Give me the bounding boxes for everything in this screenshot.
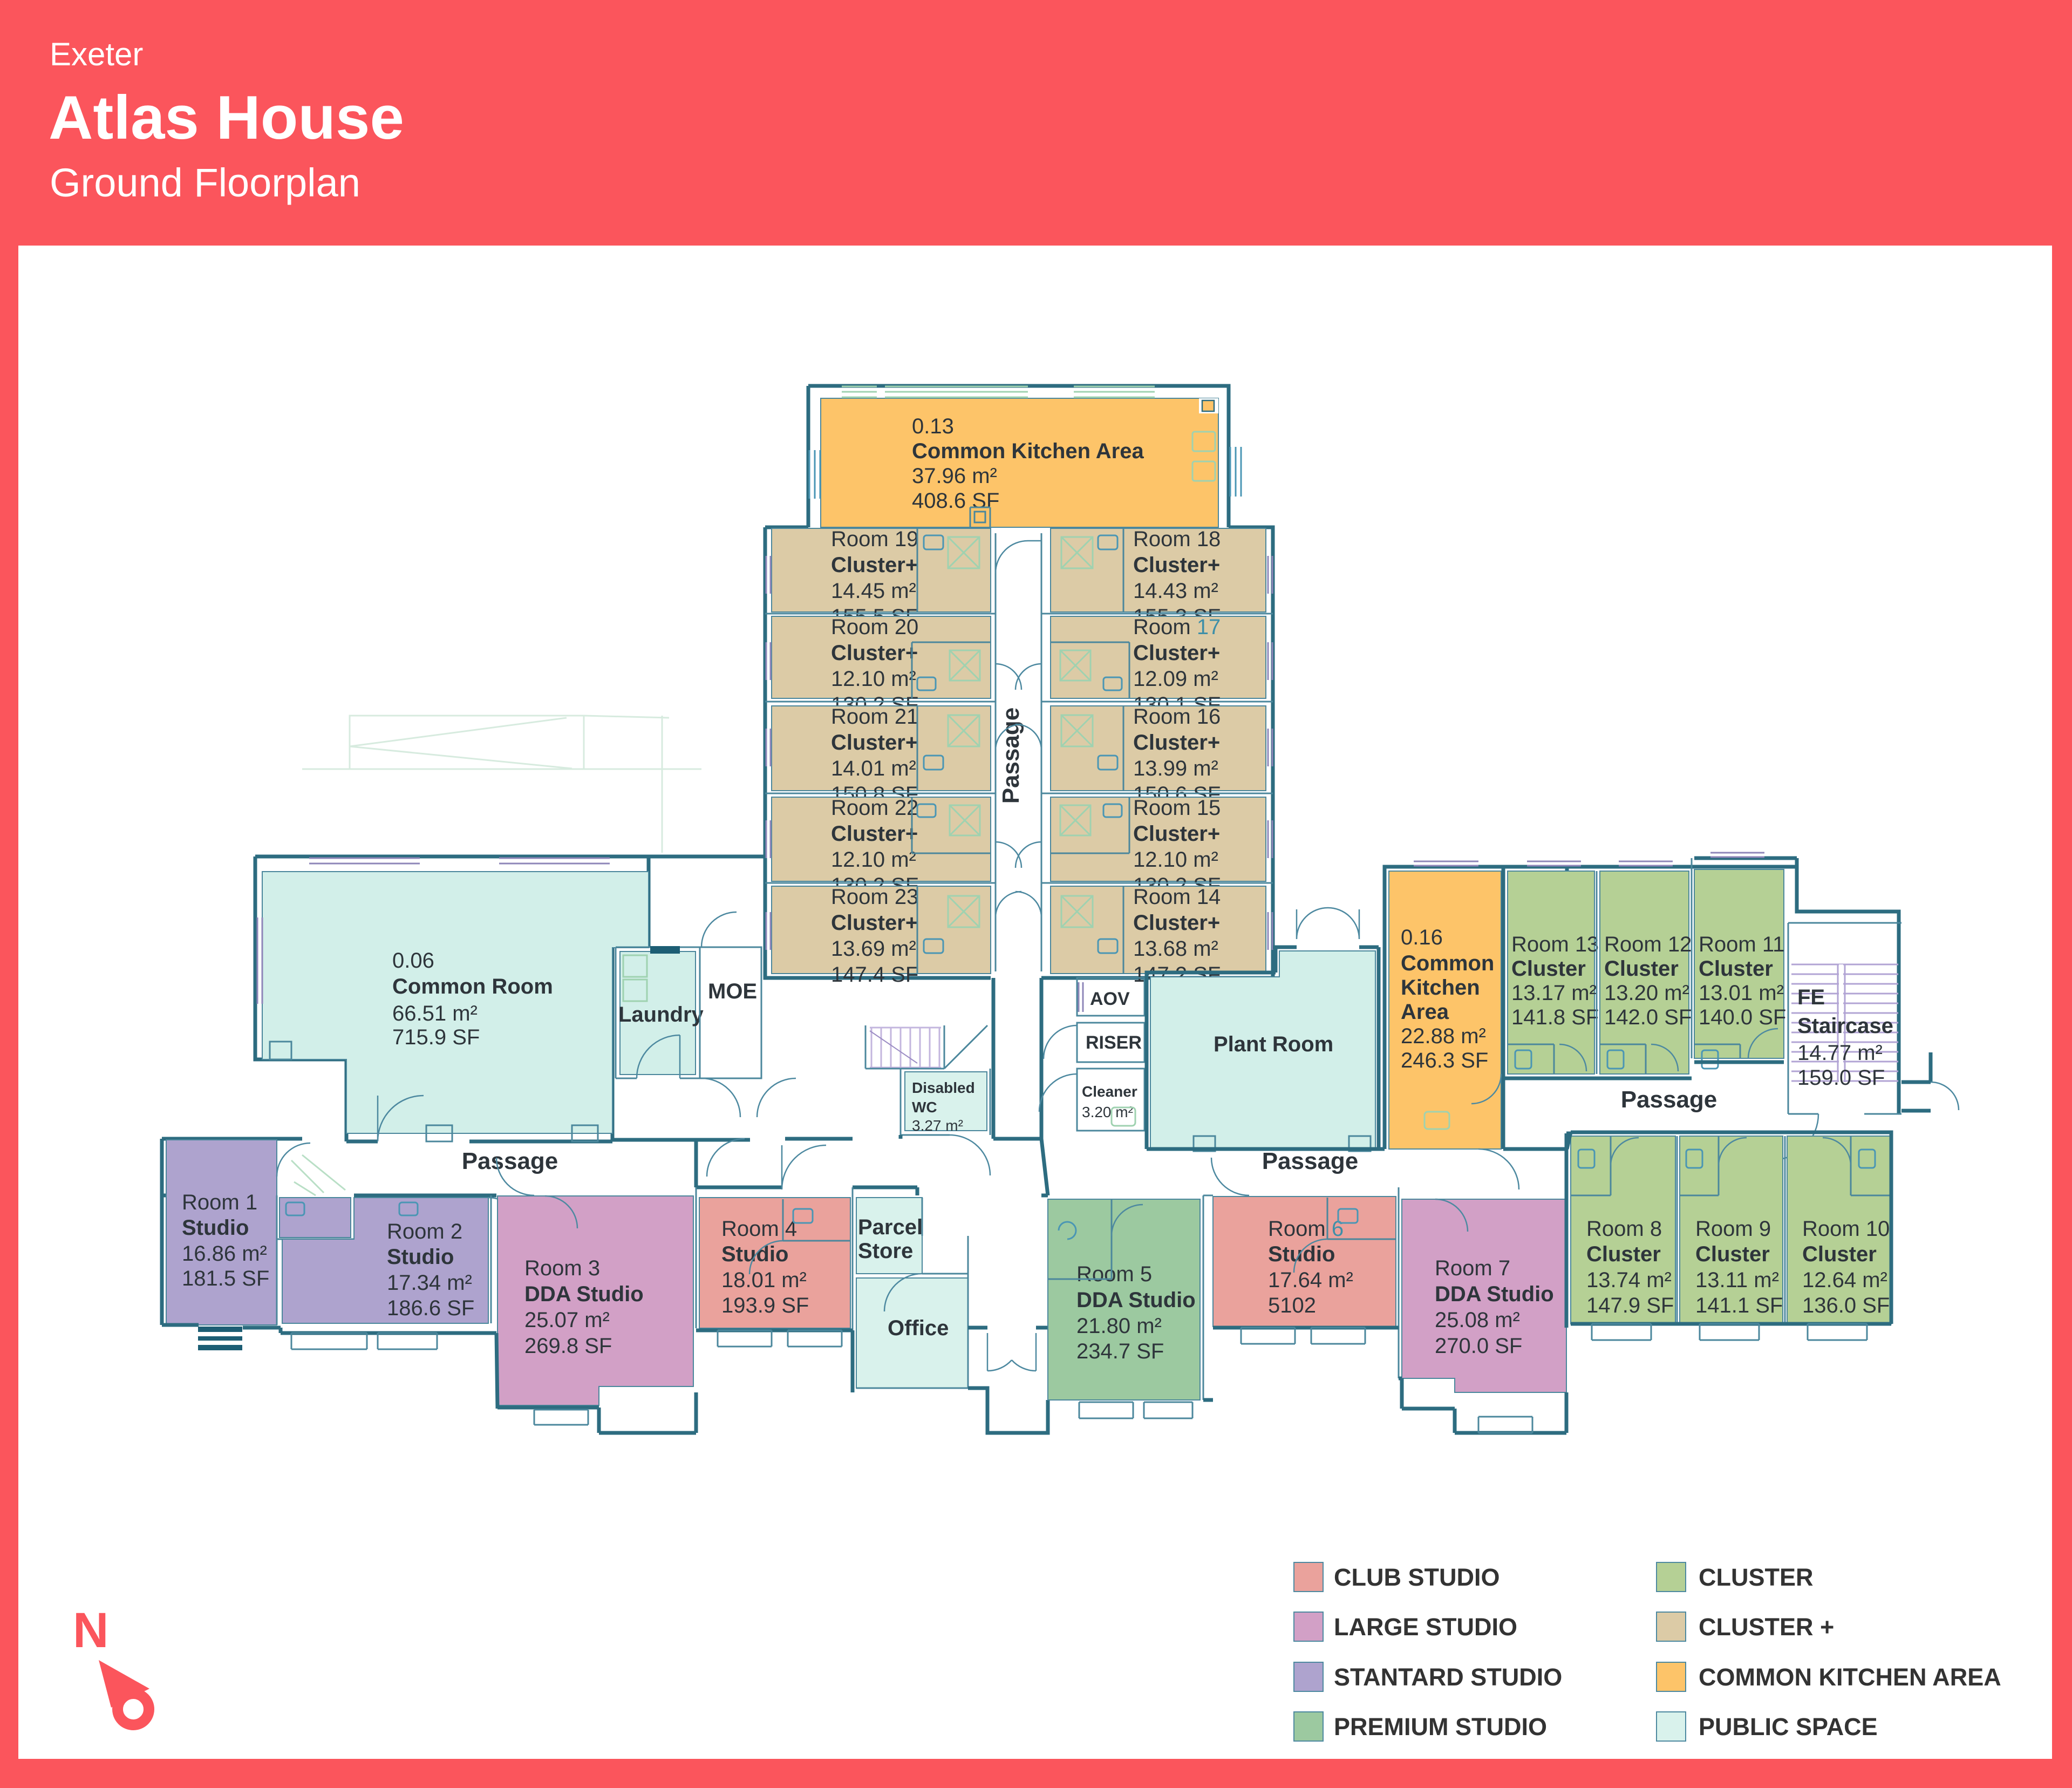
svg-text:Room 6: Room 6 — [1268, 1217, 1344, 1241]
svg-text:Room 3: Room 3 — [524, 1256, 600, 1280]
svg-text:159.0 SF: 159.0 SF — [1797, 1066, 1885, 1090]
svg-text:Room 23: Room 23 — [831, 885, 918, 909]
svg-text:WC: WC — [912, 1099, 937, 1116]
svg-text:269.8 SF: 269.8 SF — [524, 1334, 612, 1358]
svg-text:Room 8: Room 8 — [1586, 1217, 1662, 1241]
svg-text:246.3 SF: 246.3 SF — [1401, 1049, 1488, 1072]
svg-text:13.17 m²: 13.17 m² — [1511, 981, 1597, 1005]
svg-text:Room 12: Room 12 — [1604, 933, 1692, 956]
svg-text:RISER: RISER — [1086, 1032, 1142, 1053]
svg-text:3.27 m²: 3.27 m² — [912, 1117, 963, 1134]
svg-text:DDA Studio: DDA Studio — [524, 1282, 644, 1306]
svg-text:193.9 SF: 193.9 SF — [721, 1294, 809, 1317]
svg-text:Room 9: Room 9 — [1695, 1217, 1771, 1241]
svg-text:Studio: Studio — [182, 1216, 249, 1240]
svg-text:Cluster+: Cluster+ — [1133, 553, 1220, 577]
svg-text:12.64 m²: 12.64 m² — [1802, 1268, 1887, 1292]
svg-text:LARGE STUDIO: LARGE STUDIO — [1334, 1613, 1517, 1641]
svg-text:Cluster+: Cluster+ — [831, 731, 918, 754]
svg-text:STANTARD STUDIO: STANTARD STUDIO — [1334, 1663, 1562, 1691]
svg-text:37.96 m²: 37.96 m² — [912, 464, 997, 488]
svg-text:147.9 SF: 147.9 SF — [1586, 1294, 1674, 1317]
svg-text:14.43 m²: 14.43 m² — [1133, 579, 1218, 603]
svg-text:Cluster+: Cluster+ — [831, 822, 918, 846]
svg-text:Cluster: Cluster — [1699, 957, 1773, 981]
svg-text:Room 22: Room 22 — [831, 796, 918, 820]
svg-text:18.01 m²: 18.01 m² — [721, 1268, 807, 1292]
svg-text:Room 16: Room 16 — [1133, 705, 1221, 729]
svg-text:Room 2: Room 2 — [387, 1220, 462, 1243]
svg-text:13.69 m²: 13.69 m² — [831, 937, 916, 961]
svg-text:Cluster: Cluster — [1586, 1242, 1661, 1266]
svg-text:0.13: 0.13 — [912, 414, 954, 438]
svg-text:Studio: Studio — [387, 1245, 454, 1269]
svg-text:13.20 m²: 13.20 m² — [1604, 981, 1689, 1005]
svg-text:408.6 SF: 408.6 SF — [912, 489, 999, 513]
svg-text:Room 17: Room 17 — [1133, 615, 1221, 639]
svg-text:Cluster+: Cluster+ — [1133, 641, 1220, 665]
svg-text:715.9 SF: 715.9 SF — [392, 1025, 480, 1049]
svg-text:Room 19: Room 19 — [831, 527, 918, 551]
svg-text:Room 4: Room 4 — [721, 1217, 797, 1241]
svg-text:CLUB STUDIO: CLUB STUDIO — [1334, 1563, 1500, 1591]
svg-text:Passage: Passage — [462, 1148, 558, 1174]
svg-text:142.0 SF: 142.0 SF — [1604, 1005, 1692, 1029]
svg-text:Room 10: Room 10 — [1802, 1217, 1890, 1241]
svg-text:25.08 m²: 25.08 m² — [1435, 1308, 1520, 1332]
svg-text:13.11 m²: 13.11 m² — [1695, 1268, 1779, 1292]
svg-text:Cluster+: Cluster+ — [1133, 822, 1220, 846]
svg-text:12.09 m²: 12.09 m² — [1133, 667, 1218, 691]
svg-text:Room 20: Room 20 — [831, 615, 918, 639]
svg-text:Parcel: Parcel — [858, 1215, 923, 1239]
svg-text:3.20 m²: 3.20 m² — [1082, 1104, 1133, 1120]
svg-text:Passage: Passage — [1621, 1086, 1717, 1113]
svg-text:Cluster: Cluster — [1511, 957, 1586, 981]
svg-text:Studio: Studio — [721, 1242, 788, 1266]
svg-text:Passage: Passage — [998, 708, 1024, 804]
svg-text:Office: Office — [888, 1316, 949, 1340]
svg-text:Cluster+: Cluster+ — [831, 641, 918, 665]
svg-text:Room 1: Room 1 — [182, 1191, 257, 1214]
svg-text:Cluster+: Cluster+ — [1133, 731, 1220, 754]
svg-text:141.1 SF: 141.1 SF — [1695, 1294, 1783, 1317]
svg-text:Staircase: Staircase — [1797, 1014, 1893, 1038]
svg-text:16.86 m²: 16.86 m² — [182, 1242, 267, 1266]
svg-text:Disabled: Disabled — [912, 1079, 975, 1096]
svg-text:Cluster+: Cluster+ — [831, 553, 918, 577]
svg-text:270.0 SF: 270.0 SF — [1435, 1334, 1522, 1358]
svg-text:AOV: AOV — [1090, 989, 1130, 1009]
svg-text:Room 5: Room 5 — [1076, 1262, 1152, 1286]
svg-text:MOE: MOE — [708, 980, 757, 1003]
svg-text:Cluster+: Cluster+ — [831, 911, 918, 935]
svg-text:N: N — [73, 1603, 108, 1658]
svg-text:17.34 m²: 17.34 m² — [387, 1271, 472, 1295]
svg-text:COMMON KITCHEN AREA: COMMON KITCHEN AREA — [1699, 1663, 2001, 1691]
svg-text:Cluster+: Cluster+ — [1133, 911, 1220, 935]
svg-text:Common Room: Common Room — [392, 975, 553, 998]
svg-text:234.7 SF: 234.7 SF — [1076, 1340, 1164, 1363]
svg-text:Studio: Studio — [1268, 1242, 1335, 1266]
svg-text:25.07 m²: 25.07 m² — [524, 1308, 610, 1332]
svg-text:Passage: Passage — [1262, 1148, 1359, 1174]
svg-text:Store: Store — [858, 1239, 913, 1263]
svg-text:141.8 SF: 141.8 SF — [1511, 1005, 1599, 1029]
svg-text:14.01 m²: 14.01 m² — [831, 757, 916, 780]
svg-text:Common: Common — [1401, 951, 1494, 975]
svg-text:Room 7: Room 7 — [1435, 1256, 1510, 1280]
svg-text:Laundry: Laundry — [618, 1003, 704, 1026]
svg-text:CLUSTER: CLUSTER — [1699, 1563, 1814, 1591]
svg-text:Cleaner: Cleaner — [1082, 1083, 1137, 1100]
svg-text:12.10 m²: 12.10 m² — [1133, 848, 1218, 872]
svg-text:147.4 SF: 147.4 SF — [831, 963, 918, 987]
svg-text:14.45 m²: 14.45 m² — [831, 579, 916, 603]
svg-text:DDA Studio: DDA Studio — [1435, 1282, 1554, 1306]
svg-text:140.0 SF: 140.0 SF — [1699, 1005, 1786, 1029]
svg-text:186.6 SF: 186.6 SF — [387, 1296, 474, 1320]
svg-text:PREMIUM STUDIO: PREMIUM STUDIO — [1334, 1713, 1547, 1741]
svg-text:Room 21: Room 21 — [831, 705, 918, 729]
svg-text:5102: 5102 — [1268, 1294, 1316, 1317]
svg-text:21.80 m²: 21.80 m² — [1076, 1314, 1162, 1338]
svg-text:Cluster: Cluster — [1604, 957, 1679, 981]
svg-text:14.77 m²: 14.77 m² — [1797, 1041, 1883, 1065]
svg-text:Room 13: Room 13 — [1511, 933, 1599, 956]
svg-text:Cluster: Cluster — [1695, 1242, 1770, 1266]
svg-text:13.68 m²: 13.68 m² — [1133, 937, 1218, 961]
svg-text:12.10 m²: 12.10 m² — [831, 848, 916, 872]
svg-text:FE: FE — [1797, 985, 1825, 1009]
svg-text:22.88 m²: 22.88 m² — [1401, 1024, 1486, 1048]
svg-text:Area: Area — [1401, 1000, 1449, 1024]
svg-text:PUBLIC SPACE: PUBLIC SPACE — [1699, 1713, 1878, 1741]
svg-text:DDA Studio: DDA Studio — [1076, 1288, 1196, 1312]
svg-text:136.0 SF: 136.0 SF — [1802, 1294, 1890, 1317]
svg-text:Room 18: Room 18 — [1133, 527, 1221, 551]
svg-text:13.99 m²: 13.99 m² — [1133, 757, 1218, 780]
svg-text:Plant Room: Plant Room — [1214, 1032, 1333, 1056]
svg-text:181.5 SF: 181.5 SF — [182, 1267, 269, 1290]
svg-text:17.64 m²: 17.64 m² — [1268, 1268, 1353, 1292]
svg-text:12.10 m²: 12.10 m² — [831, 667, 916, 691]
svg-text:Cluster: Cluster — [1802, 1242, 1877, 1266]
svg-text:Room 11: Room 11 — [1699, 933, 1784, 956]
svg-text:0.16: 0.16 — [1401, 926, 1443, 949]
svg-text:13.01 m²: 13.01 m² — [1699, 981, 1784, 1005]
svg-text:Room 15: Room 15 — [1133, 796, 1221, 820]
svg-text:Common Kitchen Area: Common Kitchen Area — [912, 439, 1144, 463]
svg-text:66.51 m²: 66.51 m² — [392, 1002, 478, 1025]
svg-text:13.74 m²: 13.74 m² — [1586, 1268, 1672, 1292]
svg-text:Room 14: Room 14 — [1133, 885, 1221, 909]
svg-text:Kitchen: Kitchen — [1401, 976, 1480, 1000]
svg-text:0.06: 0.06 — [392, 949, 434, 973]
svg-text:CLUSTER +: CLUSTER + — [1699, 1613, 1834, 1641]
